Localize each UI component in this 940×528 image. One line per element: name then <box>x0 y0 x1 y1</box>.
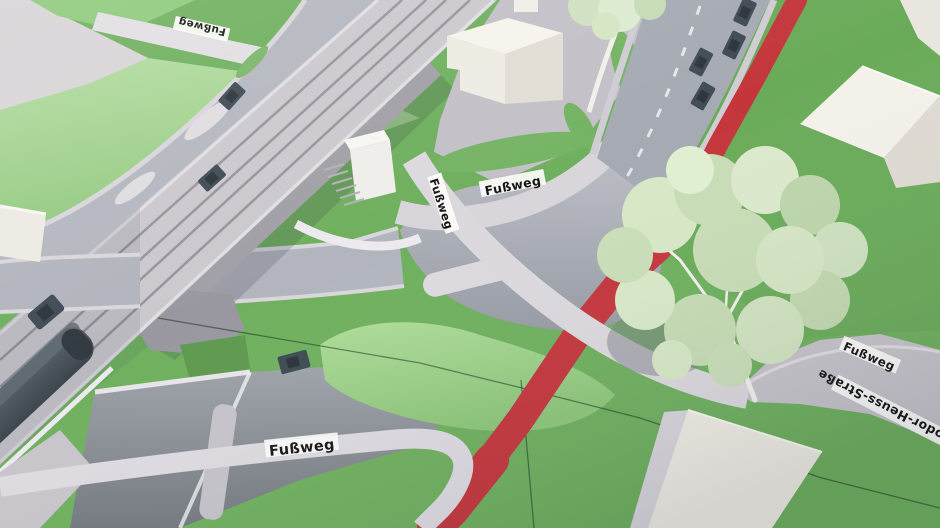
model-scene: Fußweg Fußweg Fußweg Fußweg Theodor-Heus… <box>0 0 940 528</box>
photo-vignette <box>0 0 940 528</box>
model-photo: Fußweg Fußweg Fußweg Fußweg Theodor-Heus… <box>0 0 940 528</box>
